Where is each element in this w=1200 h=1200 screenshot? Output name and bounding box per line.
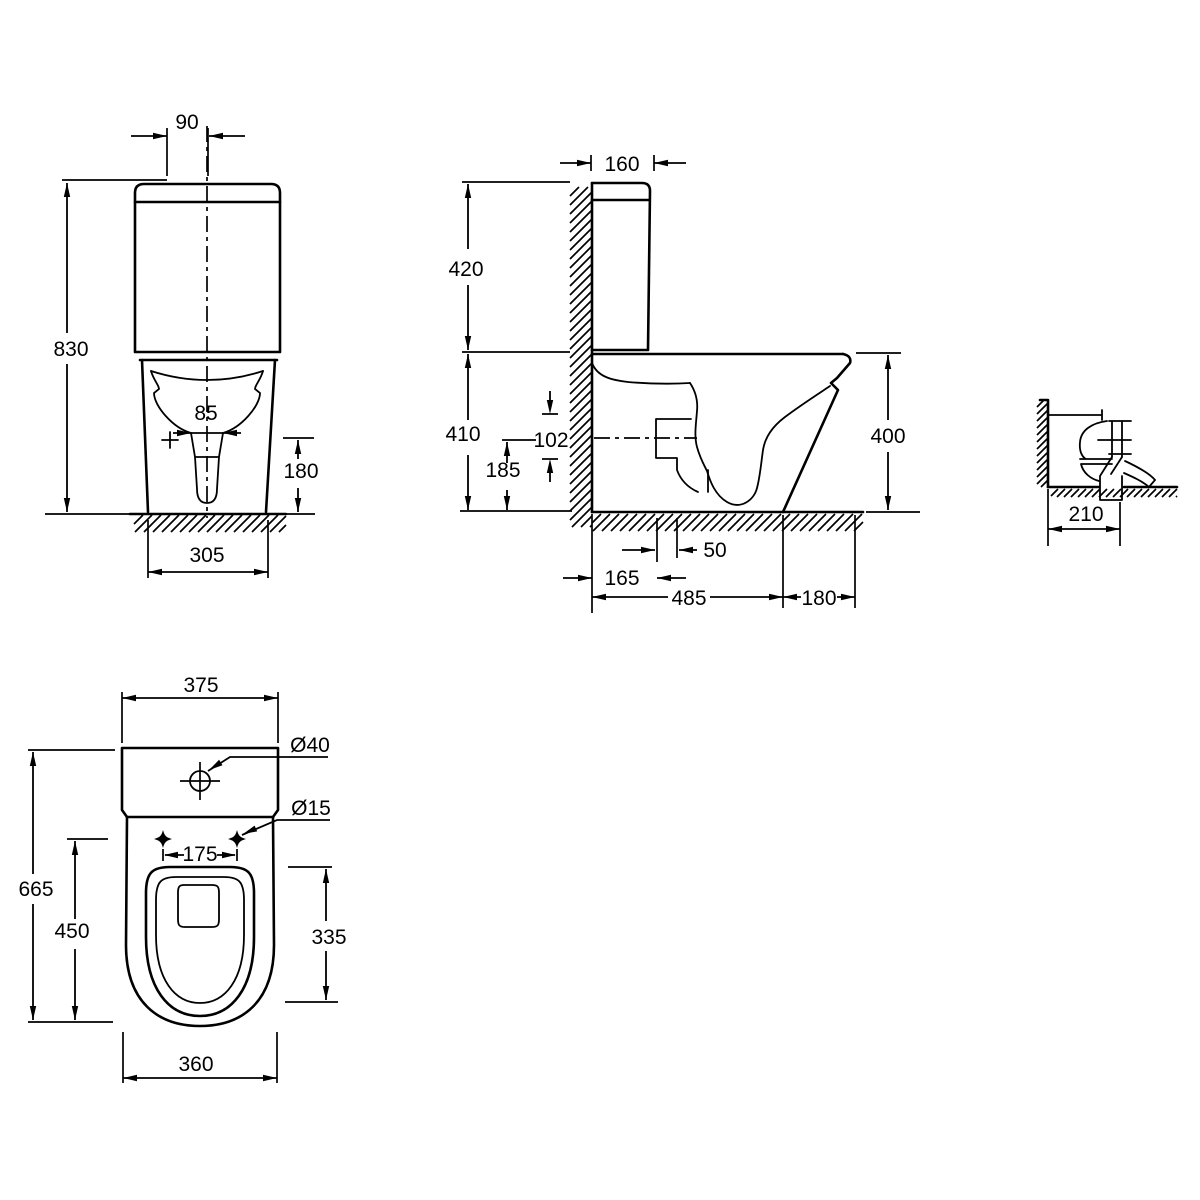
front-bowl-left — [151, 371, 191, 433]
side-dim-lines — [468, 163, 888, 597]
arrowhead — [153, 133, 167, 139]
front-view: 90 830 85 180 305 — [45, 111, 319, 578]
side-view-outline — [592, 183, 863, 512]
arrowhead — [148, 569, 162, 575]
arrowhead — [30, 752, 36, 766]
dim-plan-cistern-width: 375 — [183, 674, 218, 697]
arrowhead — [72, 1006, 78, 1020]
detail-outline — [1040, 400, 1177, 500]
arrowhead — [465, 336, 471, 350]
side-cistern — [592, 183, 650, 350]
arrowhead — [783, 594, 797, 600]
arrowhead — [72, 841, 78, 855]
arrowhead — [295, 440, 301, 454]
front-pan-sides — [142, 360, 275, 512]
side-front-face — [783, 354, 850, 512]
arrowhead — [465, 496, 471, 510]
dim-plan-seat-length: 335 — [311, 926, 346, 949]
arrowhead — [841, 594, 855, 600]
arrowhead — [254, 569, 268, 575]
outlet-detail-view: 210 — [1037, 400, 1177, 546]
dim-front-trap-height: 180 — [283, 460, 318, 483]
side-view: 160 420 410 102 185 400 50 165 485 180 — [445, 153, 920, 613]
arrowhead — [578, 575, 592, 581]
arrowhead — [657, 575, 671, 581]
dim-plan-bowl-width: 360 — [178, 1053, 213, 1076]
leader-arrowhead — [243, 826, 257, 834]
detail-floor-hatch — [1051, 489, 1177, 497]
dim-side-bowl-height: 410 — [445, 423, 480, 446]
arrowhead — [295, 498, 301, 512]
detail-elbow-body — [1080, 421, 1112, 481]
arrowhead — [264, 695, 278, 701]
arrowhead — [504, 496, 510, 510]
dim-detail-wall-to-outlet: 210 — [1068, 503, 1103, 526]
detail-wall-hatch — [1037, 400, 1048, 487]
dim-side-overall-depth: 485 — [671, 587, 706, 610]
leader-arrowhead — [209, 760, 223, 770]
front-dimensions: 90 830 85 180 305 — [45, 111, 319, 578]
dim-side-soil-offset: 165 — [604, 567, 639, 590]
arrowhead — [465, 184, 471, 198]
plan-seat-outer — [146, 867, 254, 1016]
dim-front-base-width: 305 — [189, 544, 224, 567]
arrowhead — [209, 133, 223, 139]
arrowhead — [885, 496, 891, 510]
arrowhead — [64, 498, 70, 512]
arrowhead — [654, 160, 668, 166]
side-floor-hatch — [592, 514, 863, 531]
plan-fixing-hole-left — [154, 830, 172, 848]
dim-plan-lid-hole-dia: Ø40 — [290, 734, 330, 757]
plan-outline — [122, 748, 278, 1026]
plan-dimensions: 375 Ø40 Ø15 175 665 450 335 360 — [18, 674, 346, 1083]
dim-front-flush-button-offset: 90 — [175, 111, 198, 134]
arrowhead — [164, 852, 178, 858]
toilet-technical-drawing: 90 830 85 180 305 — [0, 0, 1200, 1200]
dim-side-rim-height: 400 — [870, 425, 905, 448]
arrowhead — [323, 869, 329, 883]
dim-side-soil-setback: 50 — [703, 539, 726, 562]
plan-dim-lines — [33, 698, 326, 1078]
arrowhead — [222, 852, 236, 858]
side-wall-hatch — [570, 187, 592, 527]
arrowhead — [123, 1075, 137, 1081]
arrowhead — [504, 442, 510, 456]
front-view-outline — [130, 184, 286, 514]
arrowhead — [323, 986, 329, 1000]
dim-plan-fixing-centres: 175 — [182, 843, 217, 866]
plan-fixing-hole-right — [228, 830, 246, 848]
arrowhead — [885, 355, 891, 369]
plan-view: 375 Ø40 Ø15 175 665 450 335 360 — [18, 674, 346, 1083]
dim-front-outlet-width: 85 — [194, 402, 217, 425]
arrowhead — [547, 400, 553, 414]
detail-dimensions: 210 — [1048, 489, 1120, 546]
arrowhead — [263, 1075, 277, 1081]
arrowhead — [122, 695, 136, 701]
arrowhead — [592, 594, 606, 600]
dim-plan-fixing-to-front: 450 — [54, 920, 89, 943]
plan-leader-lines — [208, 757, 330, 835]
side-trapway — [690, 383, 830, 505]
detail-outlet-tail — [1124, 461, 1155, 487]
side-underrim — [592, 363, 690, 384]
drawing-canvas: 90 830 85 180 305 — [0, 0, 1200, 1200]
front-bowl-right — [223, 371, 263, 433]
dim-side-cistern-height: 420 — [448, 258, 483, 281]
arrowhead — [679, 547, 693, 553]
dim-side-cistern-depth: 160 — [604, 153, 639, 176]
arrowhead — [547, 459, 553, 473]
dim-front-overall-height: 830 — [53, 338, 88, 361]
front-floor-hatch — [134, 515, 286, 532]
arrowhead — [1106, 526, 1120, 532]
arrowhead — [577, 160, 591, 166]
dim-side-outlet-bore: 102 — [533, 429, 568, 452]
dim-side-outlet-centre-height: 185 — [485, 459, 520, 482]
arrowhead — [64, 183, 70, 197]
arrowhead — [465, 354, 471, 368]
plan-water-area — [178, 885, 219, 927]
front-plus-mark — [162, 432, 178, 448]
arrowhead — [1048, 526, 1062, 532]
dim-side-front-clearance: 180 — [801, 587, 836, 610]
dim-plan-fixing-hole-dia: Ø15 — [291, 797, 331, 820]
detail-fitting — [1098, 421, 1131, 457]
arrowhead — [30, 1006, 36, 1020]
arrowhead — [641, 547, 655, 553]
detail-inlet-line — [1048, 410, 1102, 420]
plan-seat-inner — [156, 877, 244, 1003]
dim-plan-overall-length: 665 — [18, 878, 53, 901]
arrowhead — [769, 594, 783, 600]
